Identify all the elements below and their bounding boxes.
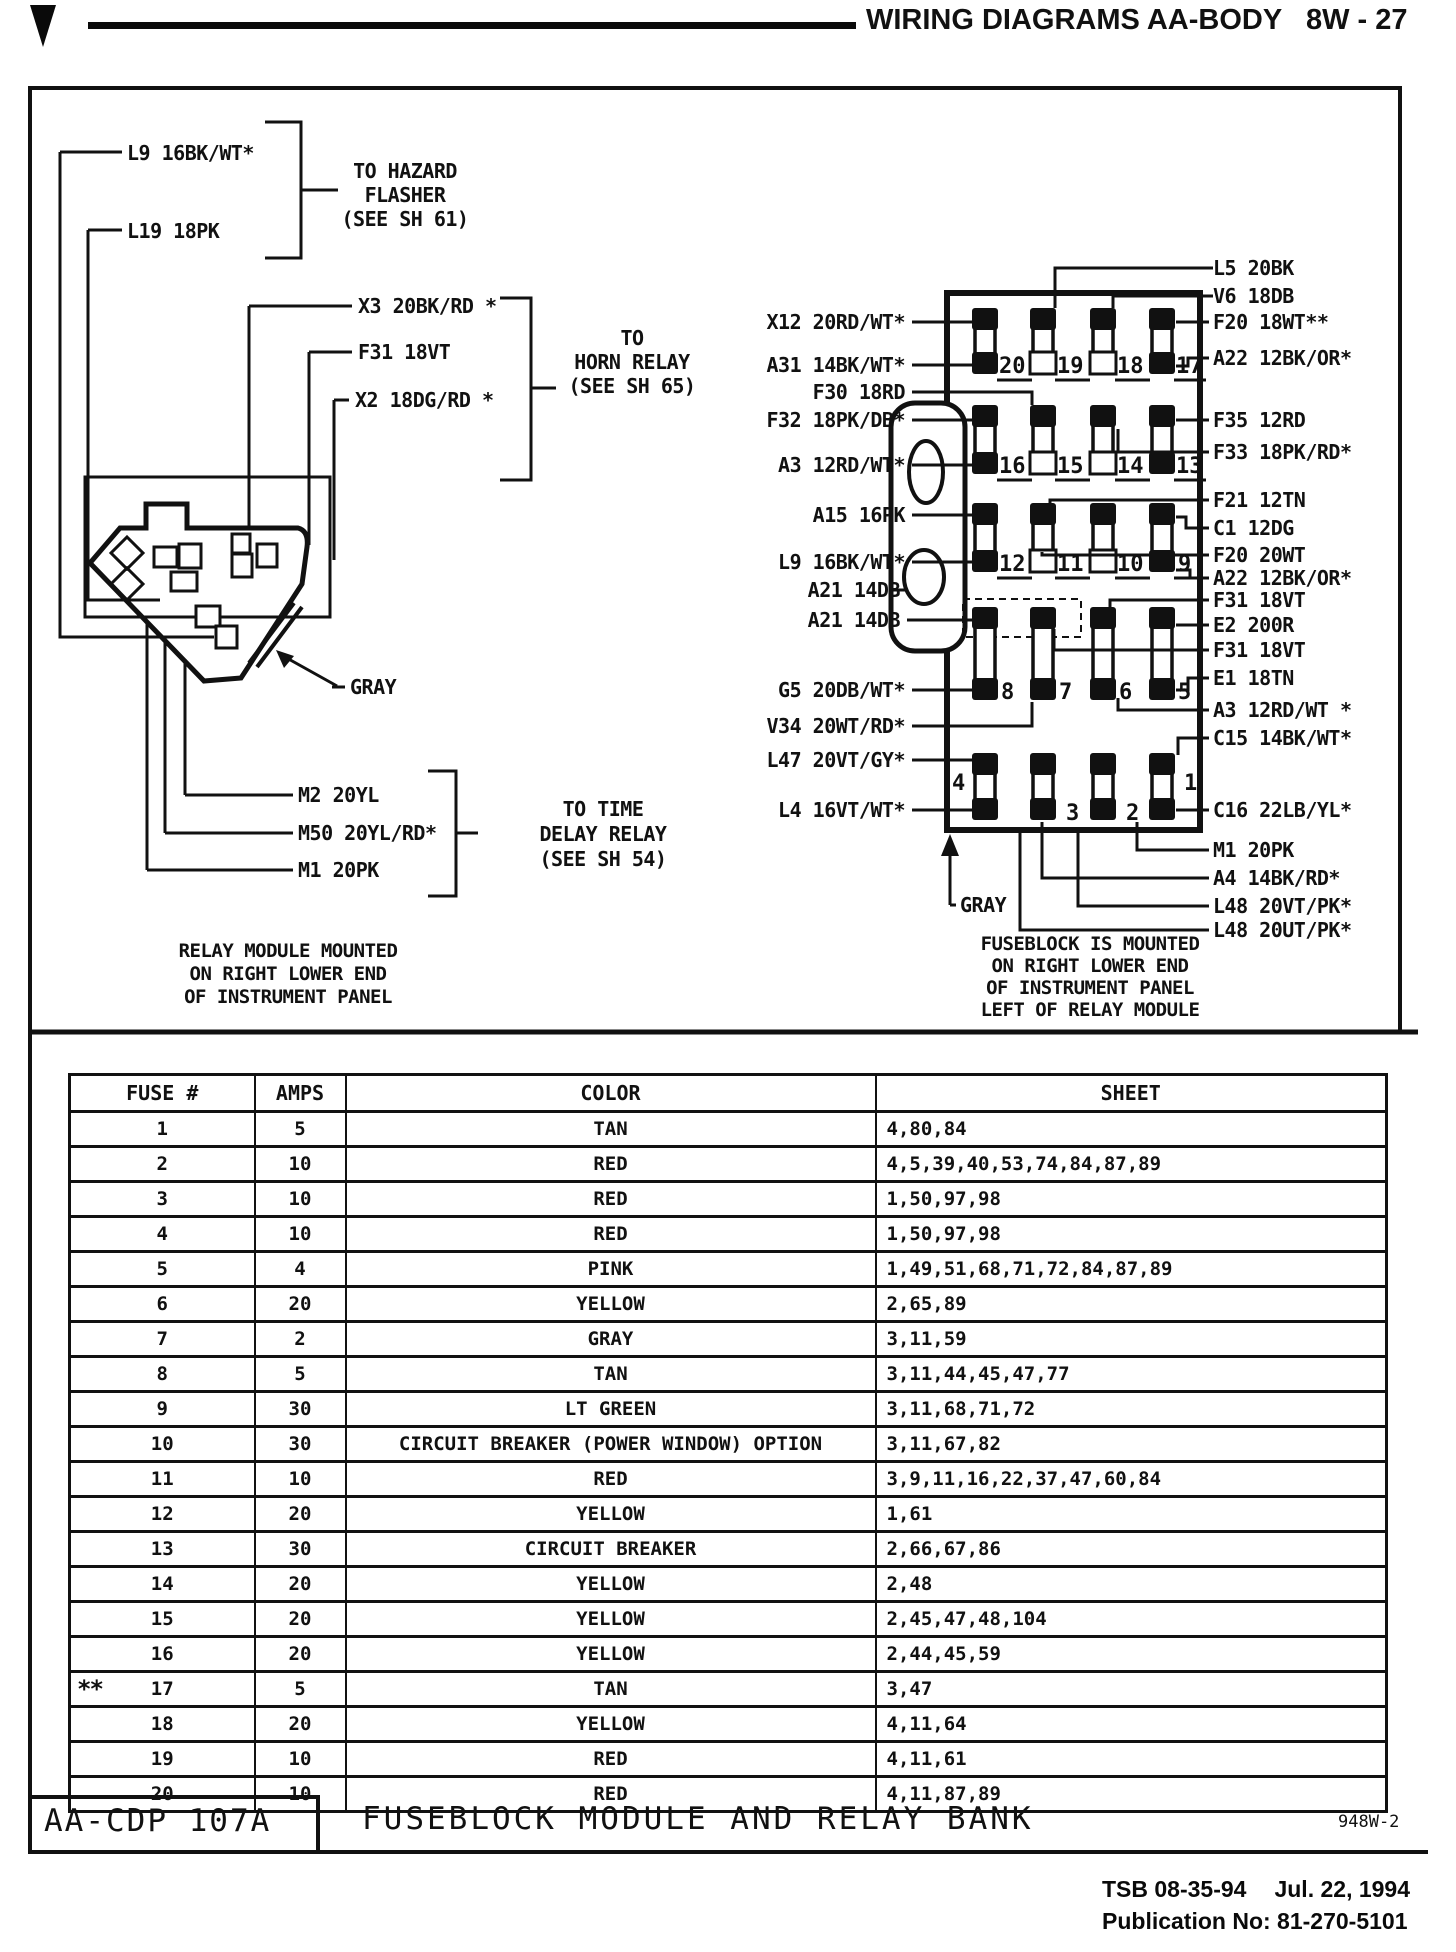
color-cell: YELLOW: [346, 1497, 876, 1532]
wire-label: L19 18PK: [127, 219, 220, 243]
amps-cell: 30: [255, 1427, 346, 1462]
wire-label: A3 12RD/WT*: [778, 453, 905, 477]
color-cell: CIRCUIT BREAKER: [346, 1532, 876, 1567]
amps-cell: 10: [255, 1147, 346, 1182]
color-cell: YELLOW: [346, 1637, 876, 1672]
wire-label: E2 200R: [1213, 613, 1295, 637]
amps-cell: 5: [255, 1672, 346, 1707]
wire-label: F21 12TN: [1213, 488, 1305, 512]
callout-line: TO TIME: [563, 797, 644, 821]
amps-cell: 10: [255, 1182, 346, 1217]
footer-tsb-line: TSB 08-35-94Jul. 22, 1994: [1102, 1876, 1410, 1903]
double-asterisk-marker: **: [77, 1675, 102, 1703]
fuseblock-left-labels: X12 20RD/WT* A31 14BK/WT* F30 18RD F32 1…: [767, 310, 906, 822]
color-cell: LT GREEN: [346, 1392, 876, 1427]
wire-label: A21 14DB: [808, 578, 901, 602]
wire-label: F20 18WT**: [1213, 310, 1328, 334]
table-row: 1030CIRCUIT BREAKER (POWER WINDOW) OPTIO…: [70, 1427, 1387, 1462]
column-header-color: COLOR: [346, 1075, 876, 1112]
wire-label: E1 18TN: [1213, 666, 1294, 690]
table-row: 410RED1,50,97,98: [70, 1217, 1387, 1252]
color-cell: RED: [346, 1182, 876, 1217]
wire-label: L9 16BK/WT*: [127, 141, 254, 165]
table-row: 1910RED4,11,61: [70, 1742, 1387, 1777]
callout-line: (SEE SH 65): [569, 374, 696, 398]
wire-label: M1 20PK: [298, 858, 379, 882]
wire-label: A22 12BK/OR*: [1213, 346, 1352, 370]
caption-line: ON RIGHT LOWER END: [190, 963, 387, 985]
callout-line: TO HAZARD: [353, 159, 457, 183]
fuse-number: 1: [1184, 771, 1197, 796]
color-cell: RED: [346, 1217, 876, 1252]
wire-label: L4 16VT/WT*: [778, 798, 905, 822]
fuse-number: 4: [952, 771, 965, 796]
color-cell: PINK: [346, 1252, 876, 1287]
table-row: 1420YELLOW2,48: [70, 1567, 1387, 1602]
fuse-cell: 18: [70, 1707, 255, 1742]
fuse-number: 12: [999, 552, 1026, 577]
amps-cell: 20: [255, 1637, 346, 1672]
wire-label: C15 14BK/WT*: [1213, 726, 1352, 750]
wire-label: L47 20VT/GY*: [767, 748, 906, 772]
relay-module-caption: RELAY MODULE MOUNTED ON RIGHT LOWER END …: [179, 940, 398, 1008]
fuse-cell: 19: [70, 1742, 255, 1777]
fuseblock-gray-label: GRAY: [960, 893, 1007, 917]
wire-label: F30 18RD: [813, 380, 906, 404]
sheet-cell: 2,44,45,59: [876, 1637, 1387, 1672]
fuse-cell: 14: [70, 1567, 255, 1602]
color-cell: YELLOW: [346, 1707, 876, 1742]
color-cell: YELLOW: [346, 1567, 876, 1602]
amps-cell: 20: [255, 1602, 346, 1637]
color-cell: CIRCUIT BREAKER (POWER WINDOW) OPTION: [346, 1427, 876, 1462]
fuse-cell: 2: [70, 1147, 255, 1182]
wire-label: F31 18VT: [1213, 588, 1306, 612]
fuse-cell: 15: [70, 1602, 255, 1637]
fuse-cell: 1: [70, 1112, 255, 1147]
gray-callout-line: [285, 657, 345, 687]
amps-cell: 2: [255, 1322, 346, 1357]
connector-hole: [904, 550, 944, 604]
table-header-row: FUSE # AMPS COLOR SHEET: [70, 1075, 1387, 1112]
sheet-cell: 2,66,67,86: [876, 1532, 1387, 1567]
sheet-cell: 3,11,44,45,47,77: [876, 1357, 1387, 1392]
color-cell: YELLOW: [346, 1287, 876, 1322]
fuse-number: 19: [1057, 354, 1084, 379]
wire-label: X3 20BK/RD *: [358, 294, 497, 318]
wire-label: F31 18VT: [1213, 638, 1306, 662]
sheet-cell: 2,48: [876, 1567, 1387, 1602]
sheet-cell: 1,50,97,98: [876, 1217, 1387, 1252]
callout-line: (SEE SH 61): [342, 207, 469, 231]
table-row: 15TAN4,80,84: [70, 1112, 1387, 1147]
relay-gray-label: GRAY: [350, 675, 397, 699]
wire-label: F35 12RD: [1213, 408, 1306, 432]
fuse-cell: 7: [70, 1322, 255, 1357]
fuse-number: 15: [1057, 454, 1084, 479]
page: WIRING DIAGRAMS AA-BODY 8W - 27: [0, 0, 1456, 1952]
caption-line: ON RIGHT LOWER END: [992, 955, 1189, 977]
table-row: 85TAN3,11,44,45,47,77: [70, 1357, 1387, 1392]
sheet-cell: 1,61: [876, 1497, 1387, 1532]
amps-cell: 30: [255, 1392, 346, 1427]
fuse-number: 16: [999, 454, 1026, 479]
amps-cell: 5: [255, 1357, 346, 1392]
relay-module-outline: [90, 504, 307, 681]
sheet-cell: 4,11,64: [876, 1707, 1387, 1742]
fuse-cell: 4: [70, 1217, 255, 1252]
fuse-cell: 16: [70, 1637, 255, 1672]
callout-line: DELAY RELAY: [540, 822, 667, 846]
sheet-cell: 3,47: [876, 1672, 1387, 1707]
fuse-number: 7: [1059, 680, 1072, 705]
fuse-number: 8: [1001, 680, 1014, 705]
relay-diamond: [111, 537, 143, 569]
color-cell: TAN: [346, 1672, 876, 1707]
wire-label: F20 20WT: [1213, 543, 1306, 567]
amps-cell: 20: [255, 1567, 346, 1602]
wire-label: A22 12BK/OR*: [1213, 566, 1352, 590]
color-cell: TAN: [346, 1112, 876, 1147]
fuse-number: 20: [999, 354, 1026, 379]
sheet-cell: 1,49,51,68,71,72,84,87,89: [876, 1252, 1387, 1287]
wire-label: X2 18DG/RD *: [355, 388, 494, 412]
color-cell: RED: [346, 1462, 876, 1497]
color-cell: YELLOW: [346, 1602, 876, 1637]
sheet-cell: 1,50,97,98: [876, 1182, 1387, 1217]
table-row: **175TAN3,47: [70, 1672, 1387, 1707]
fuse-cell: 10: [70, 1427, 255, 1462]
color-cell: RED: [346, 1147, 876, 1182]
fuse-cell: 8: [70, 1357, 255, 1392]
wire-label: G5 20DB/WT*: [778, 678, 905, 702]
table-row: 930LT GREEN3,11,68,71,72: [70, 1392, 1387, 1427]
sheet-cell: 2,65,89: [876, 1287, 1387, 1322]
footer-publication: Publication No: 81-270-5101: [1102, 1908, 1408, 1935]
relay-module: GRAY: [85, 477, 397, 699]
fuse-table: FUSE # AMPS COLOR SHEET 15TAN4,80,84 210…: [68, 1073, 1388, 1813]
column-header-fuse: FUSE #: [70, 1075, 255, 1112]
callout-hazard-flasher: TO HAZARD FLASHER (SEE SH 61): [342, 159, 469, 231]
fuse-cell: 6: [70, 1287, 255, 1322]
caption-line: RELAY MODULE MOUNTED: [179, 940, 398, 962]
arrow-icon: [276, 650, 294, 668]
wire-label: C16 22LB/YL*: [1213, 798, 1352, 822]
relay-wires: [60, 152, 352, 870]
fuse-cell: 3: [70, 1182, 255, 1217]
sheet-cell: 3,11,67,82: [876, 1427, 1387, 1462]
wire-label: C1 12DG: [1213, 516, 1294, 540]
table-row: 1220YELLOW1,61: [70, 1497, 1387, 1532]
sheet-cell: 4,80,84: [876, 1112, 1387, 1147]
tsb-number: TSB 08-35-94: [1102, 1876, 1246, 1902]
callout-line: HORN RELAY: [574, 350, 690, 374]
relay-diamond: [111, 568, 143, 600]
tsb-date: Jul. 22, 1994: [1274, 1876, 1410, 1902]
callout-line: FLASHER: [365, 183, 447, 207]
fuse-number: 13: [1176, 454, 1203, 479]
wire-label: A21 14DB: [808, 608, 901, 632]
fuse-number: 18: [1117, 354, 1144, 379]
sheet-cell: 2,45,47,48,104: [876, 1602, 1387, 1637]
sheet-cell: 3,11,59: [876, 1322, 1387, 1357]
fuseblock-right-labels: L5 20BK V6 18DB F20 18WT** A22 12BK/OR* …: [1213, 256, 1352, 942]
fuse-number: 14: [1117, 454, 1144, 479]
caption-line: LEFT OF RELAY MODULE: [981, 999, 1200, 1021]
color-cell: GRAY: [346, 1322, 876, 1357]
table-row: 310RED1,50,97,98: [70, 1182, 1387, 1217]
table-row: 620YELLOW2,65,89: [70, 1287, 1387, 1322]
color-cell: TAN: [346, 1357, 876, 1392]
wire-label: A3 12RD/WT *: [1213, 698, 1352, 722]
color-cell: RED: [346, 1742, 876, 1777]
sheet-cell: 4,5,39,40,53,74,84,87,89: [876, 1147, 1387, 1182]
table-row: 1520YELLOW2,45,47,48,104: [70, 1602, 1387, 1637]
amps-cell: 20: [255, 1287, 346, 1322]
wire-label: A15 16PK: [813, 503, 906, 527]
wire-label: F33 18PK/RD*: [1213, 440, 1352, 464]
amps-cell: 20: [255, 1497, 346, 1532]
amps-cell: 4: [255, 1252, 346, 1287]
amps-cell: 20: [255, 1707, 346, 1742]
fuse-number: 3: [1066, 801, 1079, 826]
column-header-amps: AMPS: [255, 1075, 346, 1112]
fuse-cell: 11: [70, 1462, 255, 1497]
amps-cell: 10: [255, 1742, 346, 1777]
wire-label: L48 20UT/PK*: [1213, 918, 1352, 942]
sheet-cell: 3,9,11,16,22,37,47,60,84: [876, 1462, 1387, 1497]
amps-cell: 30: [255, 1532, 346, 1567]
wire-label: M1 20PK: [1213, 838, 1294, 862]
amps-cell: 10: [255, 1217, 346, 1252]
wire-label: A4 14BK/RD*: [1213, 866, 1340, 890]
callout-line: (SEE SH 54): [540, 847, 667, 871]
fuse-cell: **17: [70, 1672, 255, 1707]
table-row: 1820YELLOW4,11,64: [70, 1707, 1387, 1742]
relay-terminals: [154, 534, 277, 648]
callout-horn-relay: TO HORN RELAY (SEE SH 65): [569, 326, 696, 398]
column-header-sheet: SHEET: [876, 1075, 1387, 1112]
drawing-number: 948W-2: [1338, 1812, 1399, 1832]
table-row: 1330CIRCUIT BREAKER2,66,67,86: [70, 1532, 1387, 1567]
sheet-cell: 4,11,61: [876, 1742, 1387, 1777]
wire-label: L5 20BK: [1213, 256, 1294, 280]
connector-hole: [909, 441, 943, 503]
sheet-cell: 3,11,68,71,72: [876, 1392, 1387, 1427]
fuse-cell: 12: [70, 1497, 255, 1532]
fuse-number: 6: [1119, 680, 1132, 705]
drawing-code: AA-CDP 107A: [44, 1803, 271, 1839]
caption-line: FUSEBLOCK IS MOUNTED: [981, 933, 1200, 955]
callout-time-delay-relay: TO TIME DELAY RELAY (SEE SH 54): [540, 797, 667, 871]
fuseblock-caption: FUSEBLOCK IS MOUNTED ON RIGHT LOWER END …: [981, 933, 1200, 1021]
fuse-cell: 5: [70, 1252, 255, 1287]
amps-cell: 10: [255, 1462, 346, 1497]
wire-label: M50 20YL/RD*: [298, 821, 437, 845]
fuse-cell: 9: [70, 1392, 255, 1427]
drawing-title: FUSEBLOCK MODULE AND RELAY BANK: [362, 1801, 1034, 1837]
amps-cell: 5: [255, 1112, 346, 1147]
table-row: 72GRAY3,11,59: [70, 1322, 1387, 1357]
arrow-icon: [941, 834, 959, 856]
fuse-cell: 13: [70, 1532, 255, 1567]
callout-line: TO: [620, 326, 644, 350]
wire-label: M2 20YL: [298, 783, 379, 807]
wire-label: L9 16BK/WT*: [778, 550, 905, 574]
caption-line: OF INSTRUMENT PANEL: [184, 986, 392, 1008]
table-row: 54PINK1,49,51,68,71,72,84,87,89: [70, 1252, 1387, 1287]
wire-label: V6 18DB: [1213, 284, 1294, 308]
wire-label: A31 14BK/WT*: [767, 353, 906, 377]
wire-label: L48 20VT/PK*: [1213, 894, 1352, 918]
caption-line: OF INSTRUMENT PANEL: [986, 977, 1194, 999]
table-row: 1620YELLOW2,44,45,59: [70, 1637, 1387, 1672]
table-row: 1110RED3,9,11,16,22,37,47,60,84: [70, 1462, 1387, 1497]
wire-label: X12 20RD/WT*: [767, 310, 906, 334]
wire-label: F31 18VT: [358, 340, 451, 364]
table-row: 210RED4,5,39,40,53,74,84,87,89: [70, 1147, 1387, 1182]
wire-label: F32 18PK/DB*: [767, 408, 906, 432]
wire-label: V34 20WT/RD*: [767, 714, 906, 738]
